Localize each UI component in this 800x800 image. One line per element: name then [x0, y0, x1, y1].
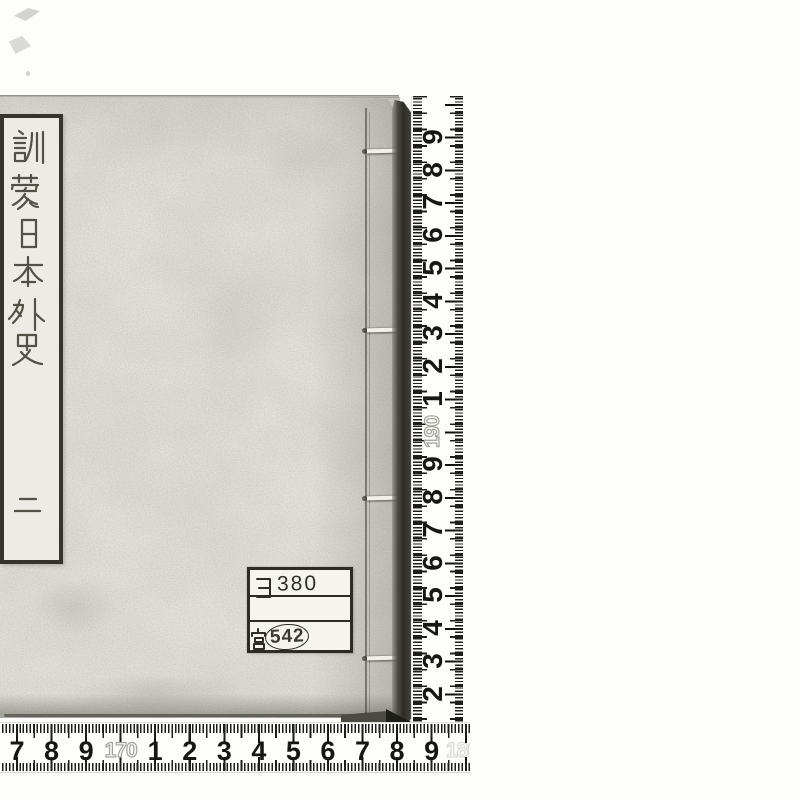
horizontal-ruler-end-number: 180 [442, 738, 470, 764]
title-kanji-strokes [0, 114, 63, 564]
horizontal-ruler: 789170123456789180 [0, 722, 470, 773]
vertical-ruler-number: 7 [416, 185, 450, 219]
vertical-ruler-number: 3 [416, 316, 450, 350]
smudge-mark-1 [14, 8, 40, 21]
smudge-mark-3 [26, 71, 30, 76]
stamp-number: 542 [269, 625, 310, 649]
vertical-ruler-number: 6 [416, 546, 450, 580]
vertical-ruler-number: 2 [416, 349, 450, 383]
book-fore-edge-shadow [392, 100, 413, 732]
stitch-knot [362, 328, 367, 333]
vertical-ruler-number: 5 [416, 251, 450, 285]
binding-crease-line [365, 108, 367, 722]
vertical-ruler-number: 6 [416, 218, 450, 252]
vertical-ruler: 98765432119098765432 [411, 96, 463, 735]
vertical-ruler-number: 9 [416, 447, 450, 481]
digitized-book-photo: 訓蒙日本外史 二 ヨ 宮 [0, 0, 800, 800]
vertical-ruler-number: 8 [416, 153, 450, 187]
stitch-knot [362, 496, 367, 501]
call-number: 380 [277, 571, 347, 596]
stitch-knot [362, 656, 367, 661]
vertical-ruler-number: 3 [416, 644, 450, 678]
vertical-ruler-number: 4 [416, 611, 450, 645]
stitch-knot [362, 149, 367, 154]
vertical-ruler-number: 4 [416, 284, 450, 318]
binding-crease-line-2 [369, 112, 370, 718]
smudge-mark-2 [9, 36, 31, 54]
vertical-ruler-number: 8 [416, 480, 450, 514]
book-bottom-edge [4, 714, 396, 717]
vertical-ruler-number: 190 [416, 415, 450, 449]
vertical-ruler-number: 7 [416, 513, 450, 547]
vertical-ruler-number: 5 [416, 578, 450, 612]
vertical-ruler-number: 1 [416, 382, 450, 416]
vertical-ruler-number: 2 [416, 677, 450, 711]
vertical-ruler-number: 9 [416, 120, 450, 154]
